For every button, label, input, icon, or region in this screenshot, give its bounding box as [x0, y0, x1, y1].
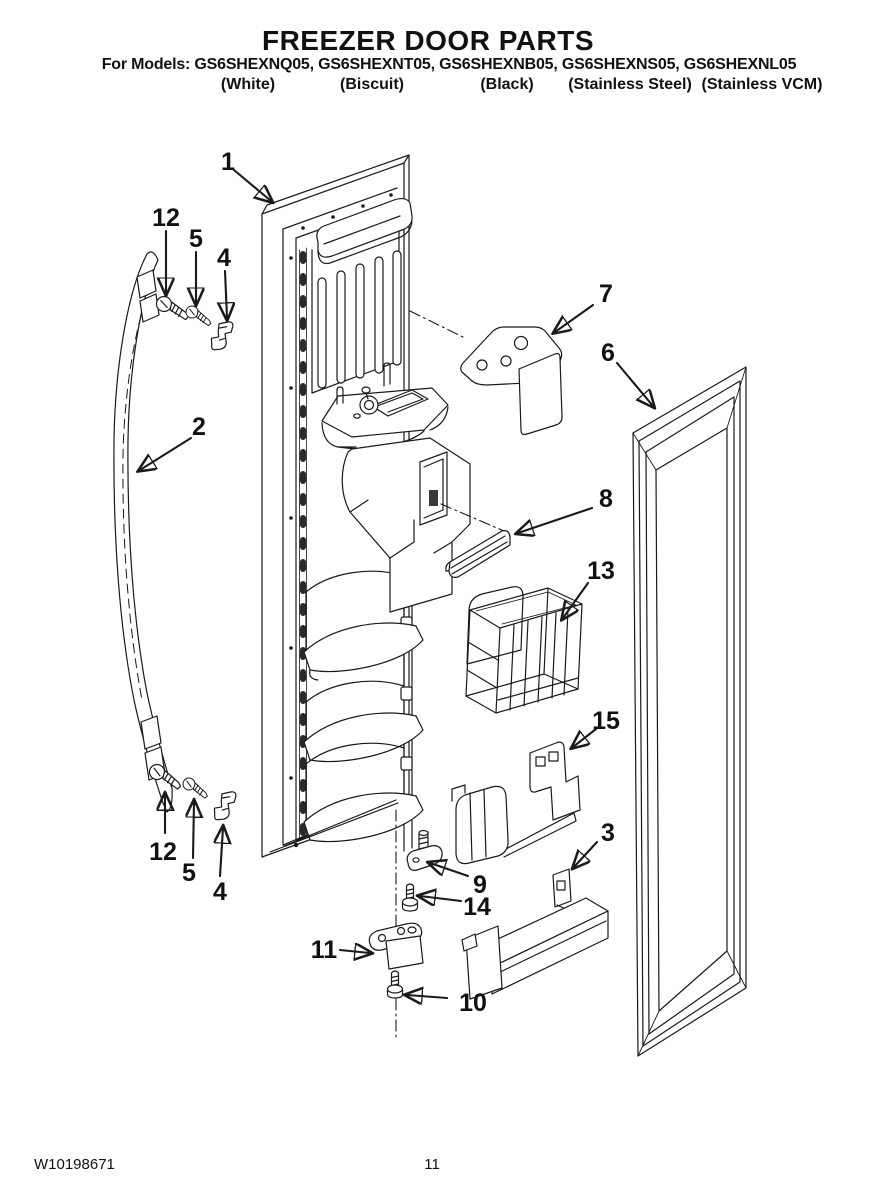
callout-label: 7	[599, 280, 613, 308]
shelf-trim-drawing	[452, 742, 580, 864]
callout-4-top: 4	[217, 244, 231, 318]
callout-2: 2	[140, 413, 206, 470]
callout-label: 5	[189, 225, 203, 253]
callout-12-bottom: 12	[149, 795, 177, 866]
dispenser-cover-plate-drawing	[461, 327, 562, 435]
page-number: 11	[424, 1156, 440, 1173]
callout-14: 14	[420, 893, 491, 921]
hinge-screw-10-drawing	[388, 971, 403, 998]
callout-10: 10	[407, 989, 487, 1017]
door-handle-drawing	[114, 252, 172, 812]
callout-label: 12	[149, 838, 177, 866]
exploded-parts-diagram: 1 12 5 4 2 7 6 8	[0, 0, 869, 1200]
callout-label: 11	[311, 936, 338, 964]
callout-label: 4	[213, 878, 227, 906]
handle-screw-top-drawing	[154, 295, 192, 320]
trim-clip-top-drawing	[210, 320, 233, 351]
callout-label: 2	[192, 413, 206, 441]
callout-label: 8	[599, 485, 613, 513]
callout-7: 7	[555, 280, 613, 332]
callout-11: 11	[311, 936, 370, 964]
callout-label: 14	[463, 893, 491, 921]
door-gasket-drawing	[633, 367, 746, 1056]
callout-6: 6	[601, 339, 653, 406]
parts-catalog-page: FREEZER DOOR PARTS For Models: GS6SHEXNQ…	[0, 0, 869, 1200]
callout-5-top: 5	[189, 225, 203, 303]
callout-label: 1	[221, 148, 235, 176]
callout-label: 3	[601, 819, 615, 847]
callout-label: 15	[592, 707, 620, 735]
document-number: W10198671	[34, 1156, 115, 1173]
callout-12-top: 12	[152, 204, 180, 293]
callout-13: 13	[563, 557, 615, 618]
freezer-door-panel-drawing	[262, 155, 470, 857]
hinge-plate-drawing	[369, 923, 423, 969]
callout-label: 4	[217, 244, 231, 272]
callout-1: 1	[221, 148, 271, 201]
set-screw-top-drawing	[184, 304, 214, 326]
callout-label: 13	[587, 557, 615, 585]
leader-line-plate	[410, 311, 463, 337]
hinge-screw-14-drawing	[403, 884, 418, 911]
callout-3: 3	[574, 819, 615, 867]
callout-8: 8	[518, 485, 613, 533]
callout-5-bottom: 5	[182, 802, 196, 887]
wire-basket-drawing	[466, 587, 582, 713]
set-screw-bottom-drawing	[181, 776, 212, 799]
callout-label: 10	[459, 989, 487, 1017]
trim-clip-bottom-drawing	[213, 790, 236, 821]
callout-label: 5	[182, 859, 196, 887]
callout-4-bottom: 4	[213, 828, 227, 906]
callout-15: 15	[573, 707, 620, 747]
callout-label: 6	[601, 339, 615, 367]
callout-label: 12	[152, 204, 180, 232]
